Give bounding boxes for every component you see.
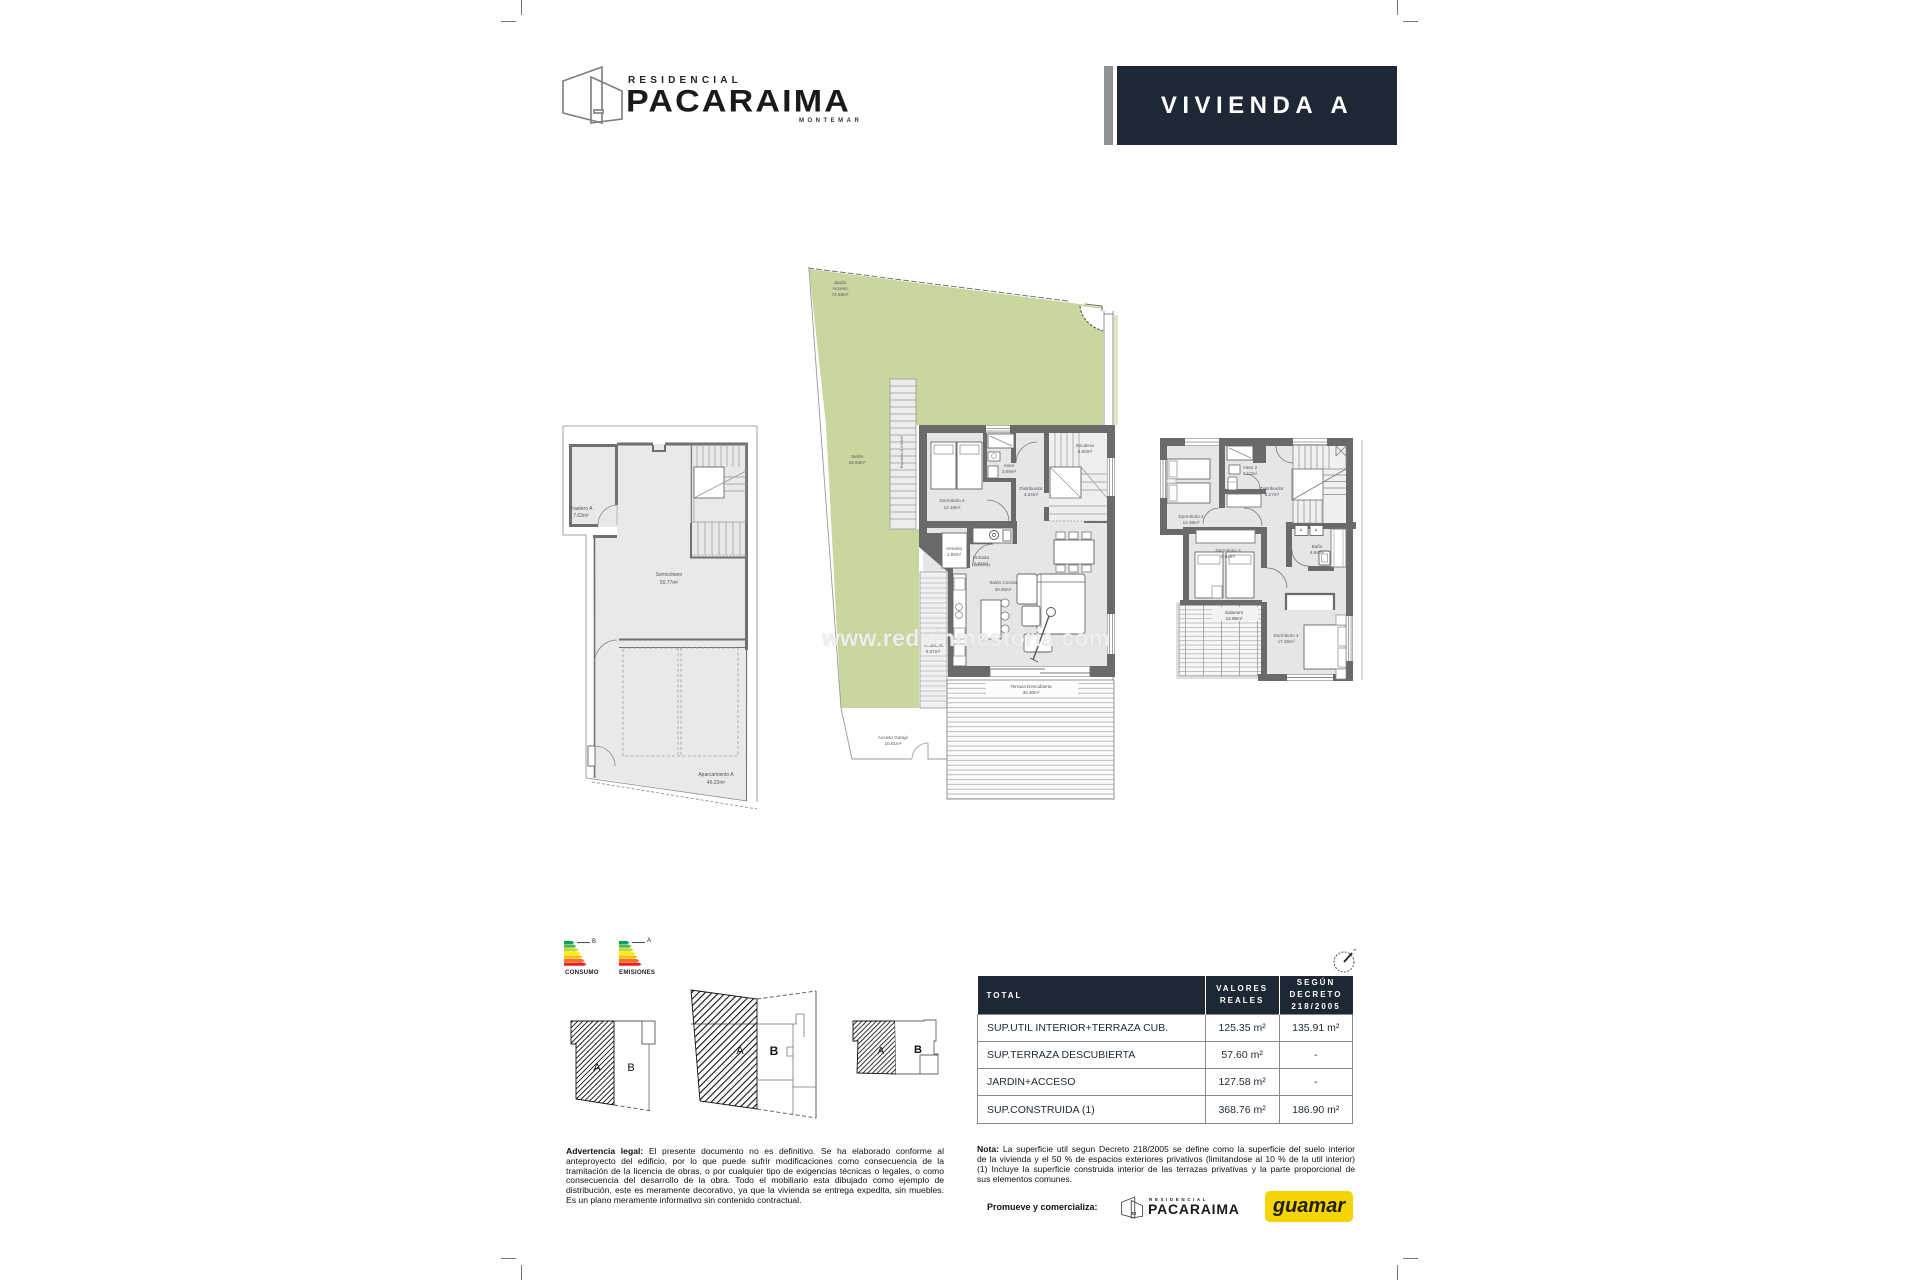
svg-text:4.34m²: 4.34m² xyxy=(1024,492,1039,497)
svg-text:Escalera: Escalera xyxy=(1076,443,1094,448)
svg-text:Baño: Baño xyxy=(1312,544,1323,549)
svg-text:Dormitorio 4: Dormitorio 4 xyxy=(939,498,964,503)
svg-text:Salón Cocina: Salón Cocina xyxy=(989,580,1017,585)
svg-text:2.61m²: 2.61m² xyxy=(974,561,989,566)
svg-text:Solarium: Solarium xyxy=(1225,610,1243,615)
svg-text:Aparcamiento A: Aparcamiento A xyxy=(698,772,734,778)
svg-text:Distribuidor: Distribuidor xyxy=(1019,486,1043,491)
svg-text:12.16m²: 12.16m² xyxy=(944,505,961,510)
svg-text:4.84m²: 4.84m² xyxy=(1310,550,1325,555)
svg-text:Aseo: Aseo xyxy=(1004,463,1015,468)
svg-text:5.50m²: 5.50m² xyxy=(1078,449,1093,454)
svg-text:Escalera A 4.95m²: Escalera A 4.95m² xyxy=(899,435,904,468)
svg-text:43.94m²: 43.94m² xyxy=(849,460,866,465)
svg-text:Dormitorio 1: Dormitorio 1 xyxy=(1273,633,1298,638)
svg-text:36.30m²: 36.30m² xyxy=(1023,690,1040,695)
svg-text:Semisótano: Semisótano xyxy=(656,572,683,578)
svg-text:10.81m²: 10.81m² xyxy=(885,741,902,746)
svg-text:B: B xyxy=(914,1044,922,1056)
svg-text:46.22m²: 46.22m² xyxy=(707,780,726,786)
svg-text:72.93m²: 72.93m² xyxy=(832,292,849,297)
svg-text:Trastero A: Trastero A xyxy=(570,506,594,512)
svg-text:Armario: Armario xyxy=(946,546,963,551)
svg-text:A: A xyxy=(736,1045,744,1057)
svg-text:50.77m²: 50.77m² xyxy=(660,580,679,586)
svg-text:12.36m²: 12.36m² xyxy=(1183,520,1200,525)
svg-text:13.96m²: 13.96m² xyxy=(1226,616,1243,621)
svg-text:3.12m²: 3.12m² xyxy=(1243,471,1258,476)
svg-text:Acceso Garaje: Acceso Garaje xyxy=(878,735,909,740)
svg-text:Dormitorio 2: Dormitorio 2 xyxy=(1178,514,1203,519)
svg-text:Distribuidor: Distribuidor xyxy=(1260,486,1284,491)
svg-text:Jardín: Jardín xyxy=(851,454,864,459)
svg-text:Aseo 2: Aseo 2 xyxy=(1243,465,1258,470)
svg-text:17.26m²: 17.26m² xyxy=(1278,639,1295,644)
svg-text:A: A xyxy=(878,1046,885,1057)
svg-text:A: A xyxy=(593,1062,601,1074)
svg-text:Acceso: Acceso xyxy=(832,286,848,291)
svg-text:3.09m²: 3.09m² xyxy=(1002,469,1017,474)
svg-text:40.96m²: 40.96m² xyxy=(995,587,1012,592)
svg-text:1.89m²: 1.89m² xyxy=(947,552,962,557)
svg-text:Jardín: Jardín xyxy=(834,280,847,285)
svg-text:B: B xyxy=(627,1062,634,1074)
svg-text:Entrada: Entrada xyxy=(973,555,990,560)
svg-text:6.27m²: 6.27m² xyxy=(1265,492,1280,497)
svg-text:B: B xyxy=(770,1044,779,1058)
svg-text:9.94m²: 9.94m² xyxy=(1221,554,1236,559)
svg-text:Terraza Descubierta: Terraza Descubierta xyxy=(1010,684,1052,689)
svg-text:7.63m²: 7.63m² xyxy=(573,513,589,519)
svg-text:Dormitorio 3: Dormitorio 3 xyxy=(1215,548,1240,553)
